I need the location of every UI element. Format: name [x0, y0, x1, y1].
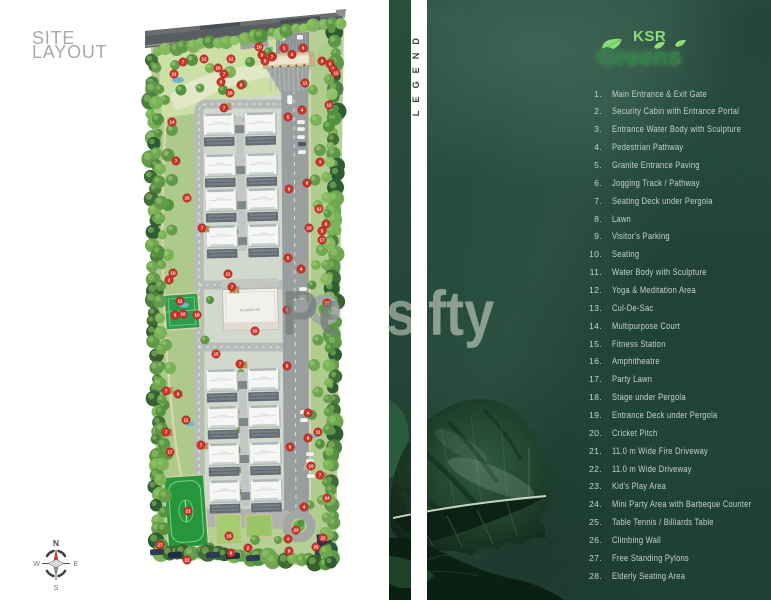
svg-text:6: 6	[288, 187, 291, 192]
svg-text:5: 5	[321, 229, 324, 234]
svg-text:17: 17	[167, 450, 173, 455]
svg-text:2: 2	[247, 546, 250, 551]
svg-text:10: 10	[215, 66, 221, 71]
svg-text:4: 4	[307, 411, 310, 416]
svg-text:24: 24	[324, 496, 330, 501]
svg-text:7: 7	[231, 285, 234, 290]
svg-text:19: 19	[252, 329, 258, 334]
svg-text:10: 10	[170, 271, 176, 276]
svg-text:7: 7	[165, 389, 168, 394]
svg-text:10: 10	[256, 45, 262, 50]
svg-text:11: 11	[178, 299, 183, 304]
svg-text:15: 15	[213, 352, 219, 357]
svg-text:4: 4	[303, 505, 306, 510]
svg-text:5: 5	[287, 256, 290, 261]
svg-text:27: 27	[157, 543, 163, 548]
svg-text:3: 3	[302, 46, 305, 51]
svg-text:15: 15	[227, 91, 233, 96]
svg-text:5: 5	[287, 115, 290, 120]
svg-text:23: 23	[293, 528, 299, 533]
svg-text:12: 12	[333, 71, 339, 76]
svg-text:11: 11	[316, 430, 321, 435]
svg-text:7: 7	[201, 226, 204, 231]
svg-text:W: W	[33, 561, 40, 568]
svg-text:2: 2	[168, 278, 171, 283]
svg-text:11: 11	[184, 418, 189, 423]
svg-text:16: 16	[306, 226, 312, 231]
svg-text:10: 10	[180, 312, 186, 317]
svg-text:9: 9	[307, 436, 310, 441]
svg-text:7: 7	[165, 430, 168, 435]
svg-text:4: 4	[300, 267, 303, 272]
svg-text:25: 25	[313, 545, 319, 550]
svg-text:17: 17	[319, 238, 325, 243]
svg-text:8: 8	[325, 222, 328, 227]
svg-text:1: 1	[283, 46, 286, 51]
svg-text:11: 11	[172, 72, 177, 77]
svg-text:7: 7	[200, 443, 203, 448]
svg-text:15: 15	[226, 534, 232, 539]
svg-text:E: E	[74, 561, 79, 568]
svg-text:7: 7	[271, 55, 274, 60]
svg-text:CLUBHOUSE: CLUBHOUSE	[240, 308, 260, 313]
svg-text:7: 7	[223, 106, 226, 111]
svg-text:15: 15	[184, 196, 190, 201]
svg-text:16: 16	[308, 464, 314, 469]
svg-text:11: 11	[226, 272, 231, 277]
svg-text:8: 8	[288, 549, 291, 554]
svg-text:6: 6	[306, 181, 309, 186]
svg-text:7: 7	[319, 473, 322, 478]
svg-text:9: 9	[220, 80, 223, 85]
svg-text:12: 12	[228, 57, 234, 62]
svg-text:8: 8	[264, 59, 267, 64]
svg-text:21: 21	[185, 509, 191, 514]
svg-text:9: 9	[230, 551, 233, 556]
svg-text:5: 5	[286, 364, 289, 369]
svg-text:4: 4	[287, 537, 290, 542]
svg-text:12: 12	[316, 207, 322, 212]
svg-text:7: 7	[182, 60, 185, 65]
svg-text:9: 9	[261, 53, 264, 58]
svg-text:9: 9	[177, 392, 180, 397]
svg-text:9: 9	[321, 59, 324, 64]
svg-text:7: 7	[175, 159, 178, 164]
svg-text:4: 4	[301, 108, 304, 113]
svg-text:2: 2	[291, 52, 294, 57]
svg-text:8: 8	[240, 83, 243, 88]
svg-text:3: 3	[319, 160, 322, 165]
svg-text:11: 11	[303, 81, 308, 86]
svg-text:14: 14	[169, 120, 175, 125]
svg-text:N: N	[53, 538, 59, 548]
svg-text:12: 12	[326, 103, 332, 108]
svg-text:22: 22	[320, 536, 326, 541]
svg-text:S: S	[54, 585, 59, 592]
svg-text:3: 3	[174, 313, 177, 318]
svg-text:7: 7	[223, 72, 226, 77]
svg-text:12: 12	[201, 57, 207, 62]
svg-text:18: 18	[194, 313, 200, 318]
svg-text:22: 22	[184, 558, 190, 563]
svg-text:6: 6	[289, 445, 292, 450]
svg-text:7: 7	[239, 362, 242, 367]
